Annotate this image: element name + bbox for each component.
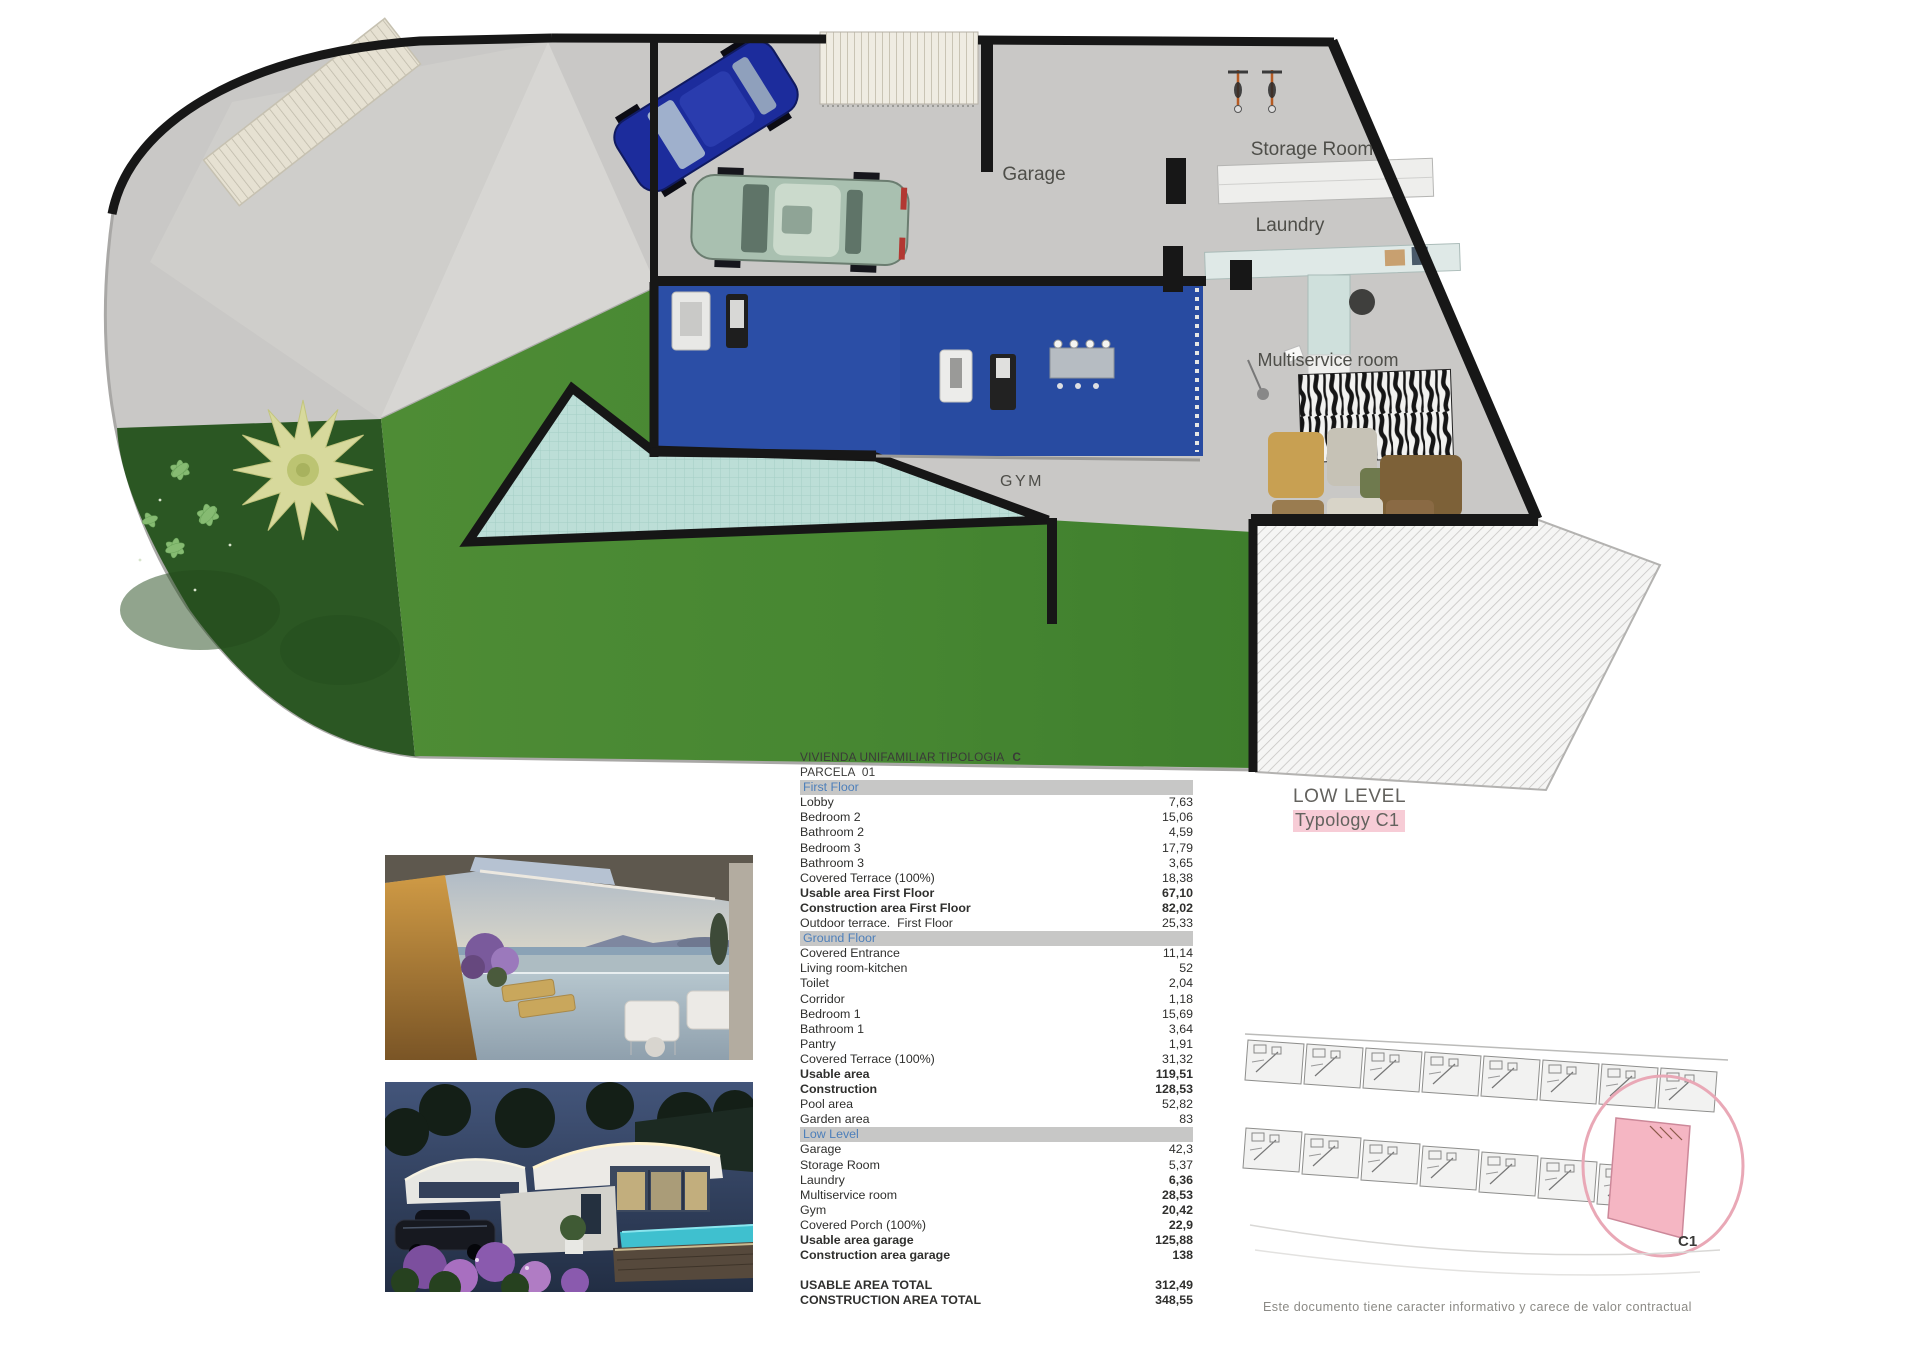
table-row: Pool area52,82 <box>800 1097 1193 1112</box>
table-row: Garden area83 <box>800 1112 1193 1127</box>
table-row: Corridor1,18 <box>800 992 1193 1007</box>
photo-terrace-render <box>385 855 753 1060</box>
table-row: Construction128,53 <box>800 1082 1193 1097</box>
label-laundry: Laundry <box>1256 215 1325 236</box>
level-label-block: LOW LEVEL Typology C1 <box>1293 786 1406 832</box>
table-section-header: Low Level <box>800 1127 1193 1142</box>
table-row: Laundry6,36 <box>800 1173 1193 1188</box>
site-plan: C1 <box>1243 1034 1743 1275</box>
table-totals: USABLE AREA TOTAL312,49CONSTRUCTION AREA… <box>800 1278 1193 1308</box>
table-row: Construction area garage138 <box>800 1248 1193 1263</box>
table-row: Bathroom 33,65 <box>800 856 1193 871</box>
label-garage: Garage <box>1002 164 1065 185</box>
level-title: LOW LEVEL <box>1293 786 1406 808</box>
table-row: Covered Entrance11,14 <box>800 946 1193 961</box>
area-table: VIVIENDA UNIFAMILIAR TIPOLOGIAC PARCELA … <box>800 750 1193 1308</box>
table-row: Living room-kitchen52 <box>800 961 1193 976</box>
hatched-ground <box>1256 519 1660 790</box>
table-row: Construction area First Floor82,02 <box>800 901 1193 916</box>
site-unit-label: C1 <box>1678 1233 1697 1250</box>
table-subtitle: PARCELA 01 <box>800 765 1193 780</box>
table-row: Lobby7,63 <box>800 795 1193 810</box>
table-row: Garage42,3 <box>800 1142 1193 1157</box>
table-row: Covered Terrace (100%)18,38 <box>800 871 1193 886</box>
floor-plan: Garage Storage Room Laundry Multiservice… <box>105 18 1660 790</box>
page: Garage Storage Room Laundry Multiservice… <box>0 0 1920 1357</box>
table-row: Usable area119,51 <box>800 1067 1193 1082</box>
car-green <box>690 166 909 273</box>
table-row: Usable area First Floor67,10 <box>800 886 1193 901</box>
table-row: USABLE AREA TOTAL312,49 <box>800 1278 1193 1293</box>
table-row: Pantry1,91 <box>800 1037 1193 1052</box>
table-row: Usable area garage125,88 <box>800 1233 1193 1248</box>
photo-exterior-render <box>385 1082 753 1292</box>
table-row: Bedroom 115,69 <box>800 1007 1193 1022</box>
disclaimer-text: Este documento tiene caracter informativ… <box>1263 1300 1773 1314</box>
table-row: Bathroom 13,64 <box>800 1022 1193 1037</box>
table-row: Multiservice room28,53 <box>800 1188 1193 1203</box>
table-row: CONSTRUCTION AREA TOTAL348,55 <box>800 1293 1193 1308</box>
table-section-header: First Floor <box>800 780 1193 795</box>
table-row: Covered Porch (100%)22,9 <box>800 1218 1193 1233</box>
typology-label: Typology C1 <box>1293 810 1405 832</box>
label-gym: GYM <box>1000 473 1044 490</box>
table-row: Outdoor terrace. First Floor25,33 <box>800 916 1193 931</box>
table-section-header: Ground Floor <box>800 931 1193 946</box>
garden <box>117 400 420 757</box>
table-row: Storage Room5,37 <box>800 1158 1193 1173</box>
site-row-bottom <box>1243 1128 1656 1208</box>
label-multiservice: Multiservice room <box>1257 350 1398 370</box>
office-chair <box>1349 289 1375 315</box>
table-row: Gym20,42 <box>800 1203 1193 1218</box>
table-row: Toilet2,04 <box>800 976 1193 991</box>
table-row: Bathroom 24,59 <box>800 825 1193 840</box>
table-title: VIVIENDA UNIFAMILIAR TIPOLOGIAC <box>800 750 1193 765</box>
table-row: Bedroom 215,06 <box>800 810 1193 825</box>
table-row: Bedroom 317,79 <box>800 841 1193 856</box>
table-row: Covered Terrace (100%)31,32 <box>800 1052 1193 1067</box>
site-row-top <box>1245 1040 1717 1112</box>
area-table-rows: First FloorLobby7,63Bedroom 215,06Bathro… <box>800 780 1193 1308</box>
label-storage: Storage Room <box>1251 139 1374 160</box>
pergola <box>820 32 978 104</box>
